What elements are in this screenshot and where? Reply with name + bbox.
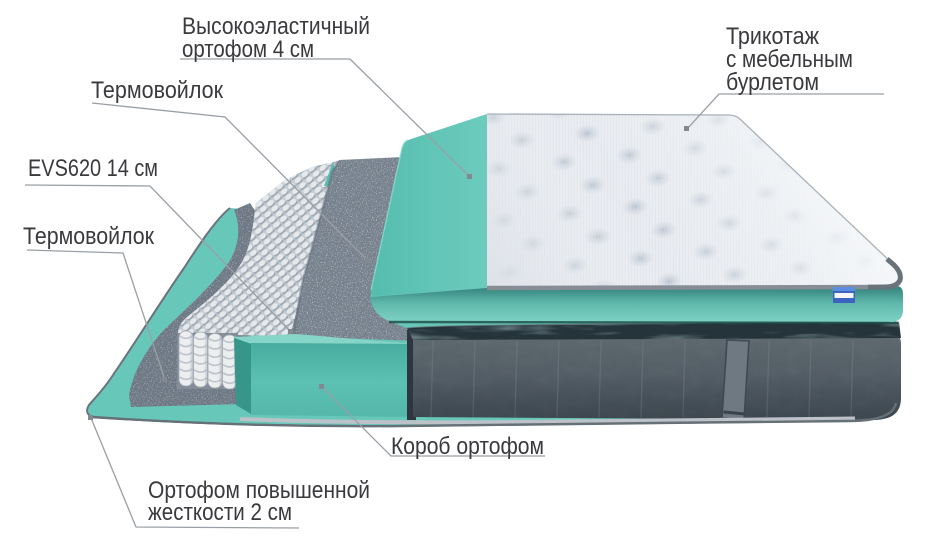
svg-text:ортофом 4 см: ортофом 4 см	[182, 36, 314, 63]
svg-text:Термовойлок: Термовойлок	[91, 77, 223, 104]
svg-text:Короб ортофом: Короб ортофом	[391, 433, 544, 460]
svg-text:EVS620 14 см: EVS620 14 см	[28, 155, 158, 182]
svg-text:Термовойлок: Термовойлок	[23, 223, 154, 250]
svg-text:жесткости 2 см: жесткости 2 см	[148, 499, 292, 526]
svg-text:бурлетом: бурлетом	[726, 69, 819, 96]
